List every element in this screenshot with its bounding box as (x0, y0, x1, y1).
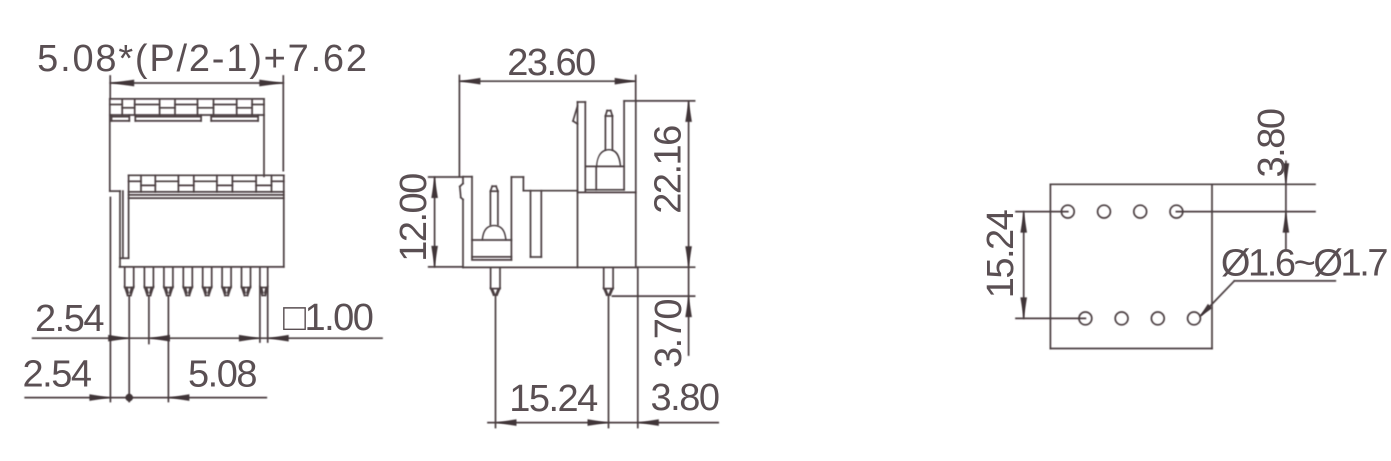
svg-text:2.54: 2.54 (35, 298, 104, 340)
svg-text:3.80: 3.80 (651, 377, 719, 419)
svg-text:2.54: 2.54 (23, 354, 92, 396)
svg-text:3.80: 3.80 (1251, 109, 1293, 177)
svg-text:5.08*(P/2-1)+7.62: 5.08*(P/2-1)+7.62 (37, 38, 369, 80)
svg-text:3.70: 3.70 (648, 300, 690, 368)
svg-text:Ø1.6~Ø1.7: Ø1.6~Ø1.7 (1221, 243, 1388, 285)
svg-text:□1.00: □1.00 (283, 297, 373, 339)
svg-text:15.24: 15.24 (509, 378, 598, 420)
svg-text:22.16: 22.16 (648, 126, 690, 214)
svg-text:23.60: 23.60 (507, 42, 595, 84)
svg-text:15.24: 15.24 (980, 209, 1022, 298)
svg-text:12.00: 12.00 (393, 174, 435, 262)
svg-text:5.08: 5.08 (188, 354, 256, 396)
